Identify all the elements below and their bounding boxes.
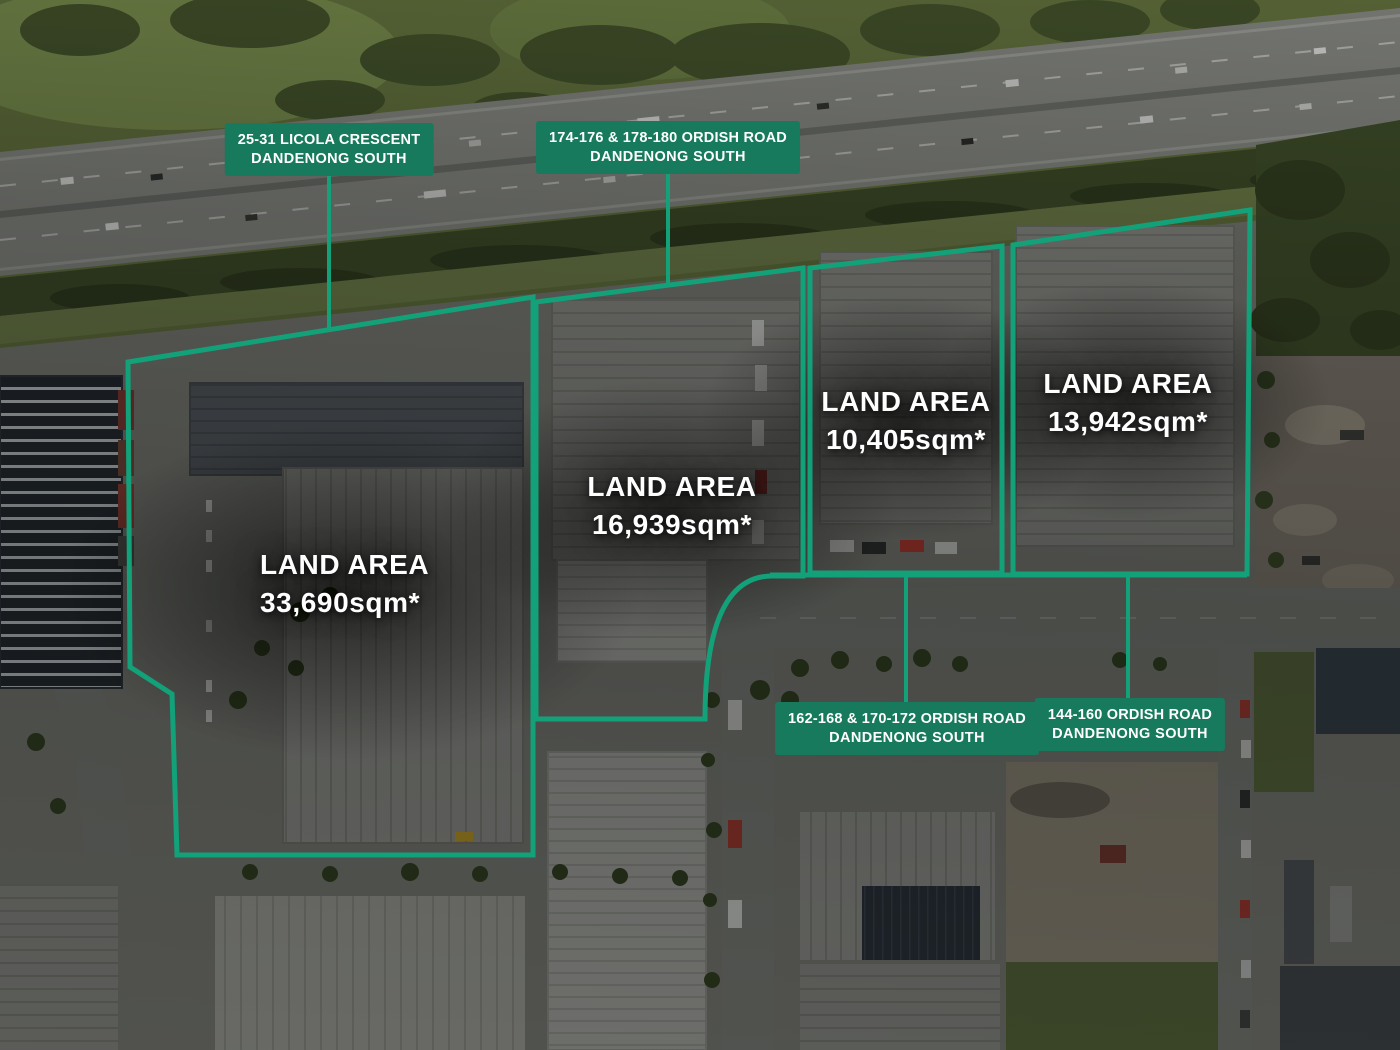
address-line1: 162-168 & 170-172 ORDISH ROAD [788,710,1026,729]
land-area-title: LAND AREA [1043,365,1212,403]
address-label-ordish-162-172: 162-168 & 170-172 ORDISH ROAD DANDENONG … [775,702,1039,755]
address-label-ordish-144-160: 144-160 ORDISH ROAD DANDENONG SOUTH [1035,698,1225,751]
address-line2: DANDENONG SOUTH [788,729,1026,748]
address-line1: 25-31 LICOLA CRESCENT [238,131,421,150]
address-line2: DANDENONG SOUTH [1048,725,1212,744]
land-area-value: 10,405sqm* [821,421,990,459]
address-label-ordish-174-180: 174-176 & 178-180 ORDISH ROAD DANDENONG … [536,121,800,174]
land-area-value: 33,690sqm* [260,584,429,622]
land-area-label-parcel-3: LAND AREA 10,405sqm* [821,383,990,459]
address-line1: 144-160 ORDISH ROAD [1048,706,1212,725]
address-label-licola-crescent: 25-31 LICOLA CRESCENT DANDENONG SOUTH [225,123,434,176]
address-line2: DANDENONG SOUTH [549,148,787,167]
land-area-title: LAND AREA [260,546,429,584]
land-area-title: LAND AREA [587,468,756,506]
land-area-label-parcel-1: LAND AREA 33,690sqm* [260,546,429,622]
address-line1: 174-176 & 178-180 ORDISH ROAD [549,129,787,148]
land-area-value: 16,939sqm* [587,506,756,544]
land-area-title: LAND AREA [821,383,990,421]
land-area-label-parcel-2: LAND AREA 16,939sqm* [587,468,756,544]
aerial-property-map: LAND AREA 33,690sqm* LAND AREA 16,939sqm… [0,0,1400,1050]
land-area-value: 13,942sqm* [1043,403,1212,441]
address-line2: DANDENONG SOUTH [238,150,421,169]
land-area-label-parcel-4: LAND AREA 13,942sqm* [1043,365,1212,441]
